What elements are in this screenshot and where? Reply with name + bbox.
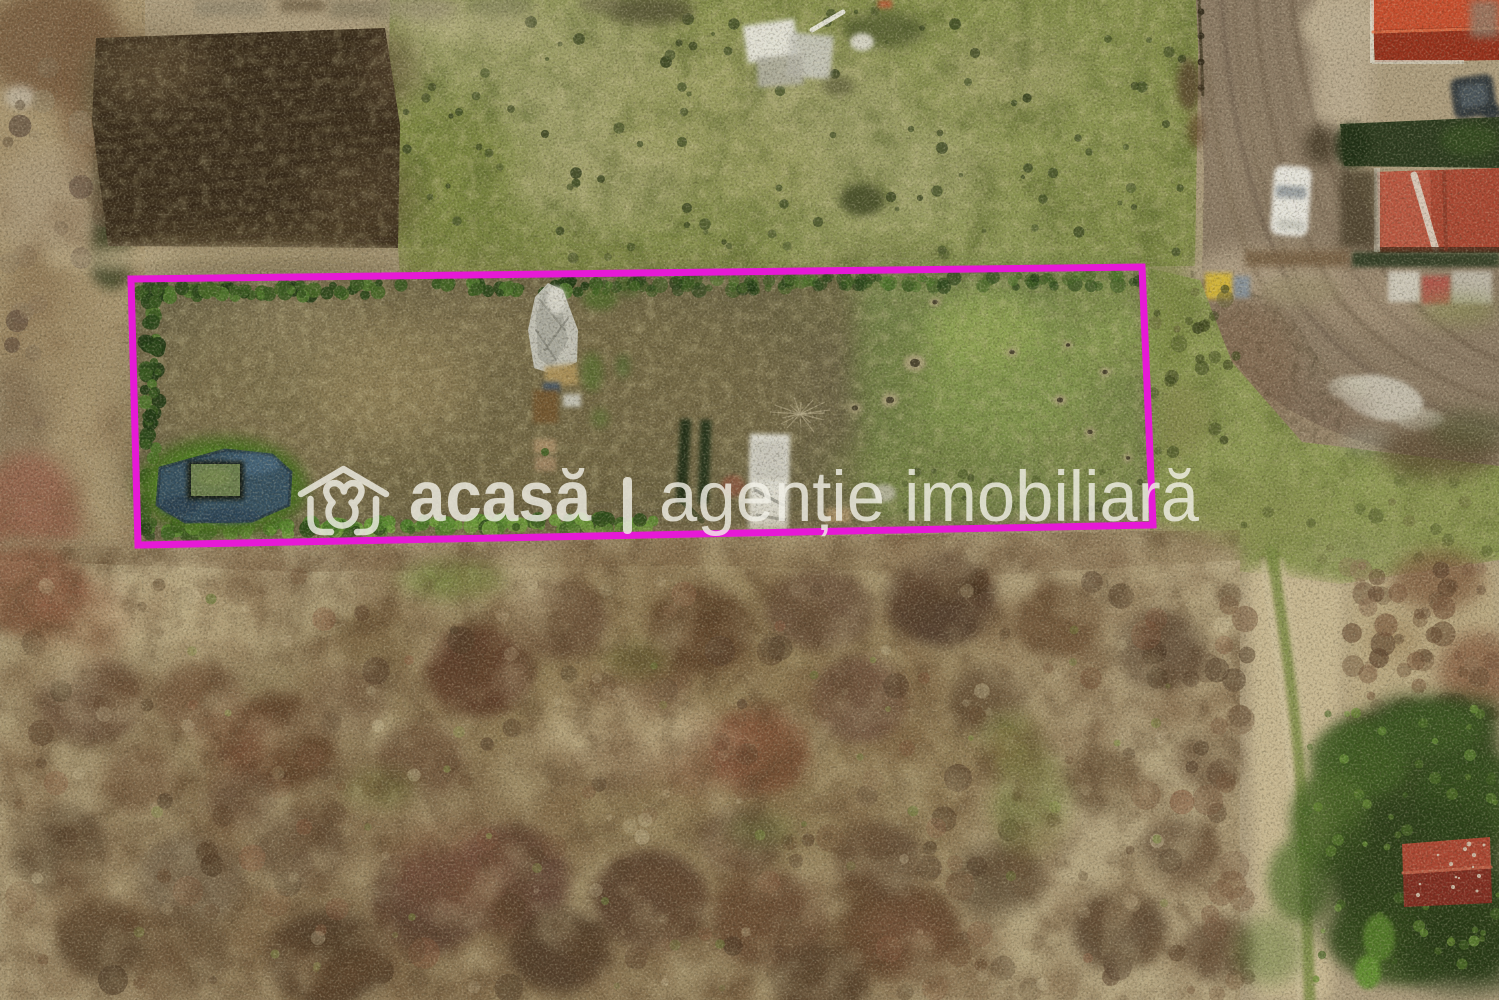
svg-text:acasă: acasă <box>409 458 591 537</box>
svg-text:agenție imobiliară: agenție imobiliară <box>659 458 1199 537</box>
